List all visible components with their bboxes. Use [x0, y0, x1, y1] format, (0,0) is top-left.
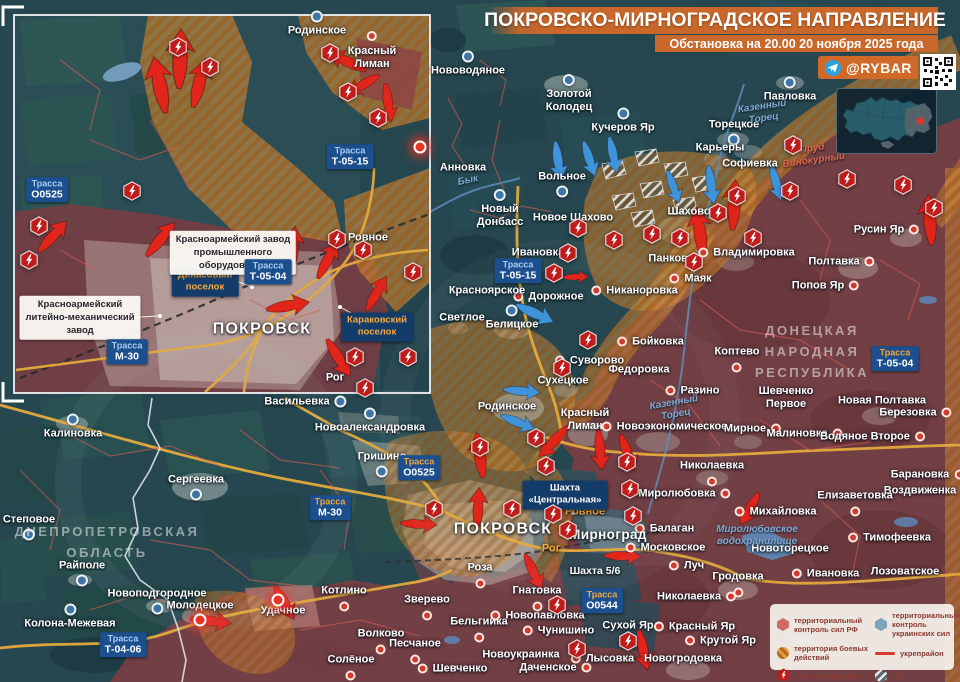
inset-clash-icon	[399, 347, 417, 367]
clash-icon	[559, 243, 577, 263]
town-name: Светлое	[439, 312, 484, 324]
clash-icon	[685, 252, 703, 272]
town-label: Полтавка	[808, 256, 859, 269]
town-name: Новоэкономическое	[617, 421, 728, 433]
town-label: Чунишино	[538, 625, 595, 638]
town-label: Дорожное	[528, 291, 583, 304]
map-legend: территориальный контроль сил РФ территор…	[770, 604, 954, 670]
town-marker	[850, 506, 860, 516]
road-number: О0525	[403, 467, 435, 479]
town-name: Малиновка	[767, 428, 828, 440]
town-marker	[784, 77, 796, 89]
town-label: Мирное	[724, 423, 766, 436]
town-label: Нововодяное	[431, 65, 505, 78]
town-label: Котлино	[321, 585, 367, 598]
town-name: Новый Донбасс	[477, 203, 523, 228]
town-label: Русин Яр	[854, 224, 904, 237]
inset-clash-icon	[354, 240, 372, 260]
qr-code	[920, 54, 956, 90]
town-label: Калиновка	[44, 428, 102, 441]
town-marker	[732, 362, 742, 372]
clash-icon	[643, 224, 661, 244]
road-number: Т-05-04	[877, 358, 914, 370]
town-name: Шевченко Первое	[759, 385, 814, 410]
town-label: Шахово	[667, 206, 710, 219]
town-marker	[67, 414, 79, 426]
region-label: ДНЕПРОПЕТРОВСКАЯ ОБЛАСТЬ	[15, 522, 200, 564]
town-label: Бойковка	[632, 336, 684, 349]
town-marker	[364, 408, 376, 420]
town-name: Тимофеевка	[863, 532, 931, 544]
town-marker	[346, 670, 356, 680]
town-name: Новоукраинка	[482, 649, 559, 661]
town-label: Светлое	[439, 312, 484, 325]
inset-road-label: ТрассаТ-05-15	[327, 144, 374, 169]
legend-label: территориальный контроль украинских сил	[892, 611, 960, 638]
town-label: Вольное	[538, 171, 586, 184]
town-name: Родинское	[288, 25, 346, 37]
road-label: ТрассаО0544	[581, 588, 623, 613]
town-name: Барановка	[891, 469, 950, 481]
town-label: Тимофеевка	[863, 532, 931, 545]
town-label: Малиновка	[767, 428, 828, 441]
town-label: Солёное	[328, 654, 375, 667]
region-label: ДОНЕЦКАЯ НАРОДНАЯ РЕСПУБЛИКА	[755, 321, 869, 383]
town-name: Новая Полтавка	[838, 395, 926, 407]
clash-glow-dot	[194, 614, 207, 627]
location-marker-icon	[918, 119, 923, 124]
clash-icon	[925, 198, 943, 218]
clash-icon	[471, 437, 489, 457]
town-marker	[422, 610, 432, 620]
road-number: М-30	[112, 351, 143, 363]
inset-clash-icon	[123, 181, 141, 201]
clash-icon	[569, 218, 587, 238]
inset-town-label: Родинское	[288, 25, 346, 38]
labels-layer: НововодяноеЗолотой КолодецКучеров ЯрПавл…	[0, 0, 960, 682]
road-label: ТрассаТ-04-06	[100, 632, 147, 657]
town-marker	[626, 543, 636, 553]
clash-icon	[579, 330, 597, 350]
town-name: Русин Яр	[854, 224, 904, 236]
town-marker	[669, 561, 679, 571]
town-marker	[311, 11, 323, 23]
town-name: Удачное	[261, 605, 306, 617]
town-name: Молодецкое	[166, 600, 233, 612]
page-title: ПОКРОВСКО-МИРНОГРАДСКОЕ НАПРАВЛЕНИЕ	[484, 9, 946, 32]
town-label: Зверево	[404, 594, 450, 607]
town-name: Сухой Яр	[602, 620, 653, 632]
road-label-prefix: Трасса	[500, 259, 537, 269]
town-label: Колона-Межевая	[24, 618, 115, 631]
town-marker	[418, 664, 428, 674]
town-marker	[64, 604, 76, 616]
river-label: Бык	[457, 173, 480, 189]
clash-icon	[545, 263, 563, 283]
town-marker	[954, 470, 960, 480]
town-marker	[410, 654, 420, 664]
town-label: Родинское	[478, 401, 536, 414]
inset-clash-icon	[201, 57, 219, 77]
town-marker	[617, 108, 629, 120]
town-label: Шахта «Центральная»	[523, 481, 608, 510]
drg-icon	[875, 670, 887, 682]
town-marker	[669, 274, 679, 284]
road-number: О0525	[31, 189, 63, 201]
town-name: Полтавка	[808, 256, 859, 268]
town-marker	[506, 305, 518, 317]
map-stage: НововодяноеЗолотой КолодецКучеров ЯрПавл…	[0, 0, 960, 682]
town-name: Николаевка	[680, 460, 744, 472]
clash-glow-dot	[272, 594, 285, 607]
legend-label: укрепрайон	[900, 649, 944, 658]
town-label: Золотой Колодец	[546, 88, 592, 114]
fortified-line-icon	[875, 652, 895, 655]
clash-icon	[709, 203, 727, 223]
town-marker	[335, 396, 347, 408]
road-label-prefix: Трасса	[586, 589, 618, 599]
clash-icon	[618, 452, 636, 472]
town-label: Удачное	[261, 605, 306, 618]
town-name: Рог	[542, 543, 560, 555]
road-label: ТрассаТ-05-04	[872, 346, 919, 371]
town-label: Гродовка	[712, 571, 763, 584]
town-label: Лысовка	[586, 653, 634, 666]
road-label-prefix: Трасса	[250, 260, 287, 270]
road-label-prefix: Трасса	[112, 340, 143, 350]
legend-label: территория боевых действий	[794, 644, 869, 662]
ua-control-hex-icon	[875, 618, 887, 631]
clash-icon	[624, 506, 642, 526]
clash-glow-dot	[414, 141, 427, 154]
town-name: Мирное	[724, 423, 766, 435]
road-label-prefix: Трасса	[332, 145, 369, 155]
town-label: Николаевка	[680, 460, 744, 473]
town-name: Солёное	[328, 654, 375, 666]
town-label: Рог	[542, 543, 560, 556]
town-marker	[865, 257, 875, 267]
town-label: Шевченко Первое	[759, 385, 814, 411]
legend-item-fortified-line: укрепрайон	[875, 644, 960, 662]
town-label: Николаевка	[657, 591, 721, 604]
town-label: Лозоватское	[871, 566, 940, 579]
subtitle-banner: Обстановка на 20.00 20 ноября 2025 года	[655, 35, 938, 52]
town-label: Барановка	[891, 469, 950, 482]
rybar-handle: @RYBAR	[846, 60, 912, 76]
town-label: Миролюбовка	[638, 488, 715, 501]
town-name: Лозоватское	[871, 566, 940, 578]
town-marker	[462, 51, 474, 63]
town-name: Родинское	[478, 401, 536, 413]
road-label-prefix: Трасса	[105, 633, 142, 643]
inset-clash-icon	[328, 229, 346, 249]
town-label: Новоподгородное	[107, 588, 206, 601]
town-label: Белицкое	[486, 319, 539, 332]
town-label: Ивановка	[807, 568, 859, 581]
town-name: Миролюбовка	[638, 488, 715, 500]
inset-road-label: ТрассаО0525	[26, 177, 68, 202]
town-marker	[494, 189, 506, 201]
clash-icon	[553, 358, 571, 378]
town-label: Васильевка	[264, 396, 329, 409]
road-number: М-30	[315, 507, 346, 519]
town-label: Красноярское	[449, 285, 525, 298]
town-label: Водяное Второе	[820, 431, 910, 444]
town-name: Бойковка	[632, 336, 684, 348]
town-name: Карьеры	[696, 142, 745, 154]
town-name: Михайловка	[750, 506, 817, 518]
legend-label: территориальный контроль сил РФ	[794, 616, 869, 634]
town-marker	[474, 632, 484, 642]
town-label: Красный Яр	[669, 621, 735, 634]
town-name: Рог	[326, 372, 344, 384]
town-label: Елизаветовка	[817, 490, 892, 503]
clash-icon	[781, 181, 799, 201]
town-marker	[707, 476, 717, 486]
road-number: О0544	[586, 600, 618, 612]
town-label: Анновка	[440, 162, 486, 175]
road-number: Т-05-15	[332, 156, 369, 168]
town-label: Шевченко	[433, 663, 488, 676]
clash-icon	[728, 186, 746, 206]
town-name: Красноярское	[449, 285, 525, 297]
road-number: Т-05-04	[250, 271, 287, 283]
town-label: Крутой Яр	[700, 635, 756, 648]
town-name: Водяное Второе	[820, 431, 910, 443]
town-label: Попов Яр	[792, 280, 844, 293]
town-name: Новогродовка	[644, 653, 722, 665]
town-marker	[915, 432, 925, 442]
inset-town-label: Караковский поселок	[341, 313, 413, 342]
town-marker	[151, 602, 163, 614]
road-label: ТрассаТ-05-15	[495, 258, 542, 283]
town-marker	[475, 578, 485, 588]
town-marker	[617, 337, 627, 347]
inset-clash-icon	[369, 108, 387, 128]
town-name: Красный Лиман	[348, 45, 396, 70]
town-name: Шахта «Центральная»	[529, 483, 602, 506]
town-marker	[665, 386, 675, 396]
town-name: Даченское	[519, 662, 576, 674]
town-name: Нововодяное	[431, 65, 505, 77]
clash-icon	[605, 230, 623, 250]
road-label-prefix: Трасса	[877, 347, 914, 357]
clash-icon	[503, 499, 521, 519]
town-name: Калиновка	[44, 428, 102, 440]
clash-icon	[619, 631, 637, 651]
town-marker	[556, 185, 568, 197]
town-name: Попов Яр	[792, 280, 844, 292]
town-name: Караковский поселок	[347, 315, 407, 338]
town-label: Балаган	[650, 523, 694, 536]
town-name: Песчаное	[389, 638, 441, 650]
road-number: Т-04-06	[105, 644, 142, 656]
town-label: Новогродовка	[644, 653, 722, 666]
town-label: Никаноровка	[606, 285, 678, 298]
town-name: Котлино	[321, 585, 367, 597]
town-marker	[602, 422, 612, 432]
legend-item-ru-control: территориальный контроль сил РФ	[777, 611, 869, 638]
town-marker	[721, 489, 731, 499]
town-name: Дорожное	[528, 291, 583, 303]
town-name: Васильевка	[264, 396, 329, 408]
town-marker	[339, 601, 349, 611]
town-name: Золотой Колодец	[546, 88, 592, 113]
town-name: ПОКРОВСК	[213, 321, 311, 338]
telegram-icon	[825, 60, 841, 76]
town-name: Шахово	[667, 206, 710, 218]
town-label: Роза	[467, 562, 492, 575]
town-label: Коптево	[715, 346, 760, 359]
town-marker	[848, 533, 858, 543]
town-marker	[792, 569, 802, 579]
town-name: Красный Яр	[669, 621, 735, 633]
road-label-prefix: Трасса	[31, 178, 63, 188]
clashes-icon	[777, 668, 790, 682]
road-label: ТрассаО0525	[398, 455, 440, 480]
town-label: Софиевка	[722, 158, 778, 171]
town-name: Роза	[467, 562, 492, 574]
town-name: ПОКРОВСК	[454, 521, 552, 538]
town-name: Никаноровка	[606, 285, 678, 297]
legend-label: ДРГ	[892, 672, 907, 681]
town-label: Новоукраинка	[482, 649, 559, 662]
inset-clash-icon	[339, 82, 357, 102]
town-name: Анновка	[440, 162, 486, 174]
town-marker	[654, 622, 664, 632]
ukraine-locator-map	[836, 88, 937, 154]
town-name: Николаевка	[657, 591, 721, 603]
clash-icon	[621, 479, 639, 499]
town-name: Чунишино	[538, 625, 595, 637]
town-name: Березовка	[879, 407, 936, 419]
town-marker	[523, 626, 533, 636]
town-name: Ивановка	[512, 247, 564, 259]
inset-town-label: Рог	[326, 372, 344, 385]
town-name: Балаган	[650, 523, 694, 535]
town-marker	[367, 31, 377, 41]
legend-item-clashes: боестолкновения	[777, 668, 869, 682]
town-label: Молодецкое	[166, 600, 233, 613]
town-name: Лысовка	[586, 653, 634, 665]
town-name: Луч	[684, 560, 704, 572]
town-name: Крутой Яр	[700, 635, 756, 647]
town-marker	[376, 644, 386, 654]
legend-item-ua-control: территориальный контроль украинских сил	[875, 611, 960, 638]
town-name: Гродовка	[712, 571, 763, 583]
legend-item-drg: ДРГ	[875, 668, 960, 682]
town-marker	[685, 636, 695, 646]
town-marker	[942, 408, 952, 418]
clash-icon	[537, 456, 555, 476]
page-subtitle: Обстановка на 20.00 20 ноября 2025 года	[670, 37, 924, 51]
town-marker	[376, 465, 388, 477]
clash-icon	[568, 639, 586, 659]
inset-clash-icon	[346, 347, 364, 367]
title-banner: ПОКРОВСКО-МИРНОГРАДСКОЕ НАПРАВЛЕНИЕ	[492, 7, 938, 34]
town-label: Шахта 5/6	[570, 565, 621, 577]
town-name: Федоровка	[608, 364, 669, 376]
town-marker	[490, 611, 500, 621]
combat-zone-icon	[777, 647, 789, 659]
town-name: Ивановка	[807, 568, 859, 580]
town-marker	[909, 225, 919, 235]
inset-clash-icon	[20, 250, 38, 270]
legend-label: боестолкновения	[795, 672, 860, 681]
town-marker	[190, 488, 202, 500]
town-name: Новоалександровка	[315, 422, 425, 434]
clash-icon	[548, 595, 566, 615]
rybar-badge[interactable]: @RYBAR	[818, 56, 918, 79]
inset-town-label: Красный Лиман	[348, 45, 396, 71]
town-name: Вольное	[538, 171, 586, 183]
town-name: Владимировка	[713, 247, 795, 259]
road-label: ТрассаМ-30	[310, 495, 351, 520]
road-label-prefix: Трасса	[315, 496, 346, 506]
town-label: ПОКРОВСК	[454, 521, 552, 540]
inset-road-label: ТрассаТ-05-04	[245, 259, 292, 284]
town-name: Шахта 5/6	[570, 565, 621, 577]
town-label: Владимировка	[713, 247, 795, 260]
town-name: Маяк	[684, 273, 711, 285]
town-name: Коптево	[715, 346, 760, 358]
town-label: Кучеров Яр	[591, 122, 654, 135]
inset-road-label: ТрассаМ-30	[107, 339, 148, 364]
town-label: Карьеры	[696, 142, 745, 155]
town-name: Софиевка	[722, 158, 778, 170]
town-name: Красноармейский литейно-механический зав…	[25, 299, 134, 336]
town-label: Новоэкономическое	[617, 421, 728, 434]
town-name: Зверево	[404, 594, 450, 606]
town-marker	[735, 507, 745, 517]
river-label: Казенный Торец	[737, 98, 789, 129]
town-label: Мирноград	[569, 527, 647, 543]
town-name: Мирноград	[569, 527, 647, 542]
clash-icon	[784, 135, 802, 155]
inset-clash-icon	[321, 43, 339, 63]
town-label: Федоровка	[608, 364, 669, 377]
town-label: Маяк	[684, 273, 711, 286]
ru-control-hex-icon	[777, 618, 789, 631]
town-label: Березовка	[879, 407, 936, 420]
clash-icon	[894, 175, 912, 195]
town-label: Луч	[684, 560, 704, 573]
town-name: Сергеевка	[168, 474, 224, 486]
town-label: Московское	[641, 542, 706, 555]
clash-icon	[544, 504, 562, 524]
clash-icon	[744, 228, 762, 248]
inset-town-label: ПОКРОВСК	[213, 321, 311, 340]
town-label: Новый Донбасс	[477, 203, 523, 229]
town-marker	[76, 574, 88, 586]
road-label-prefix: Трасса	[403, 456, 435, 466]
town-name: Кучеров Яр	[591, 122, 654, 134]
town-name: Московское	[641, 542, 706, 554]
town-label: Новоалександровка	[315, 422, 425, 435]
town-marker	[591, 286, 601, 296]
town-label: Сергеевка	[168, 474, 224, 487]
town-label: Новопавловка	[505, 610, 584, 623]
clash-icon	[671, 228, 689, 248]
clash-icon	[527, 428, 545, 448]
river-label: Миролюбовское водохранилище	[716, 524, 798, 548]
town-name: Белицкое	[486, 319, 539, 331]
town-marker	[849, 281, 859, 291]
town-label: Михайловка	[750, 506, 817, 519]
inset-clash-icon	[30, 216, 48, 236]
town-name: Колона-Межевая	[24, 618, 115, 630]
inset-clash-icon	[404, 262, 422, 282]
